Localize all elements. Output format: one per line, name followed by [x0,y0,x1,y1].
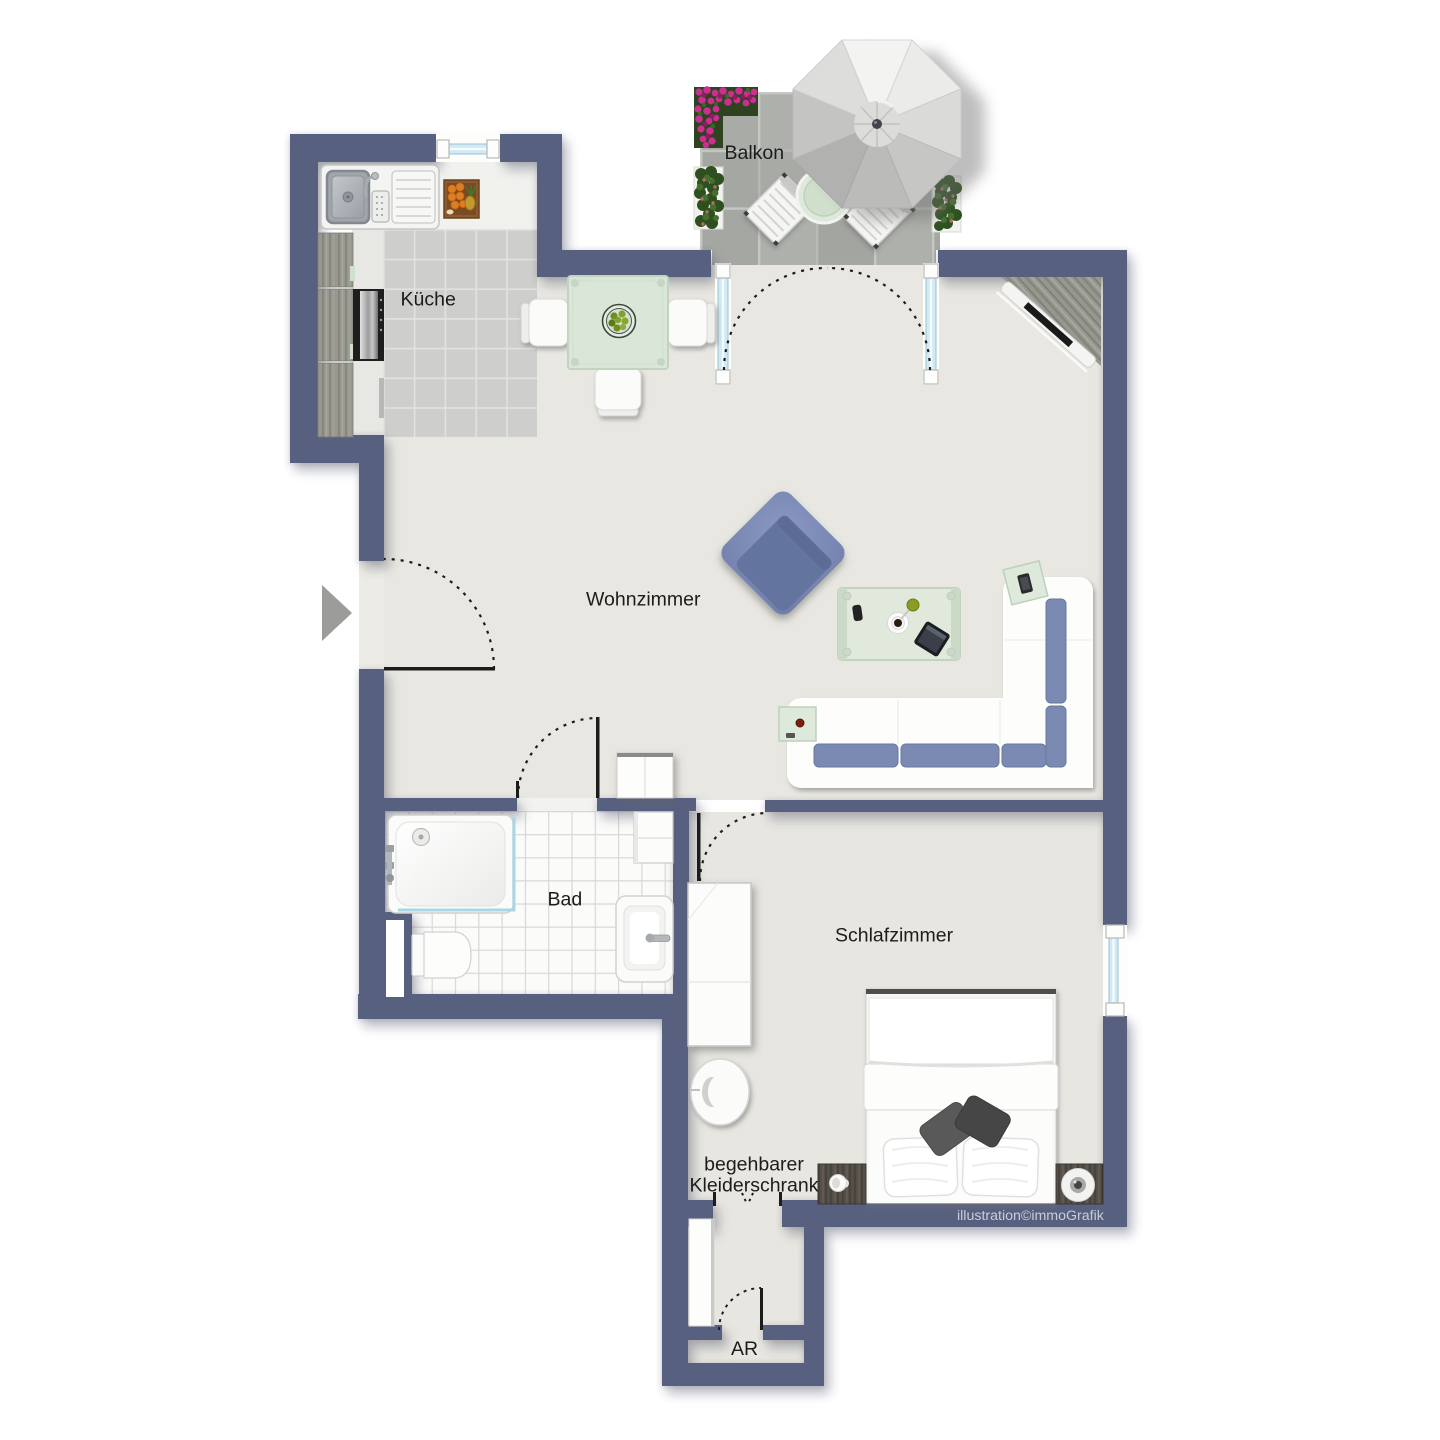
svg-text:Kleiderschrank: Kleiderschrank [690,1175,819,1197]
svg-text:Bad: Bad [548,889,583,911]
svg-text:illustration©immoGrafik: illustration©immoGrafik [957,1208,1105,1224]
svg-text:AR: AR [731,1338,758,1360]
svg-text:begehbarer: begehbarer [704,1154,804,1176]
svg-text:Küche: Küche [401,289,456,311]
svg-text:Schlafzimmer: Schlafzimmer [835,925,954,947]
svg-text:Balkon: Balkon [725,142,785,164]
svg-text:Wohnzimmer: Wohnzimmer [586,589,701,611]
